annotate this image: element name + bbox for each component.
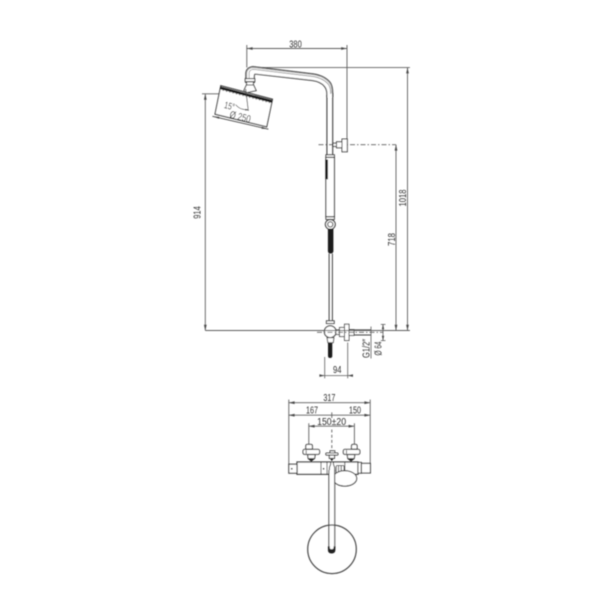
svg-text:914: 914 [192,206,203,219]
svg-text:G1/2″: G1/2″ [362,339,373,358]
svg-text:317: 317 [323,393,335,404]
svg-text:150±20: 150±20 [317,417,346,428]
svg-text:167: 167 [306,405,318,416]
svg-text:94: 94 [333,365,342,376]
svg-text:380: 380 [289,39,302,50]
svg-text:Ø 64: Ø 64 [373,341,384,355]
svg-text:718: 718 [387,233,398,246]
svg-text:1018: 1018 [398,189,409,206]
svg-text:150: 150 [349,405,361,416]
